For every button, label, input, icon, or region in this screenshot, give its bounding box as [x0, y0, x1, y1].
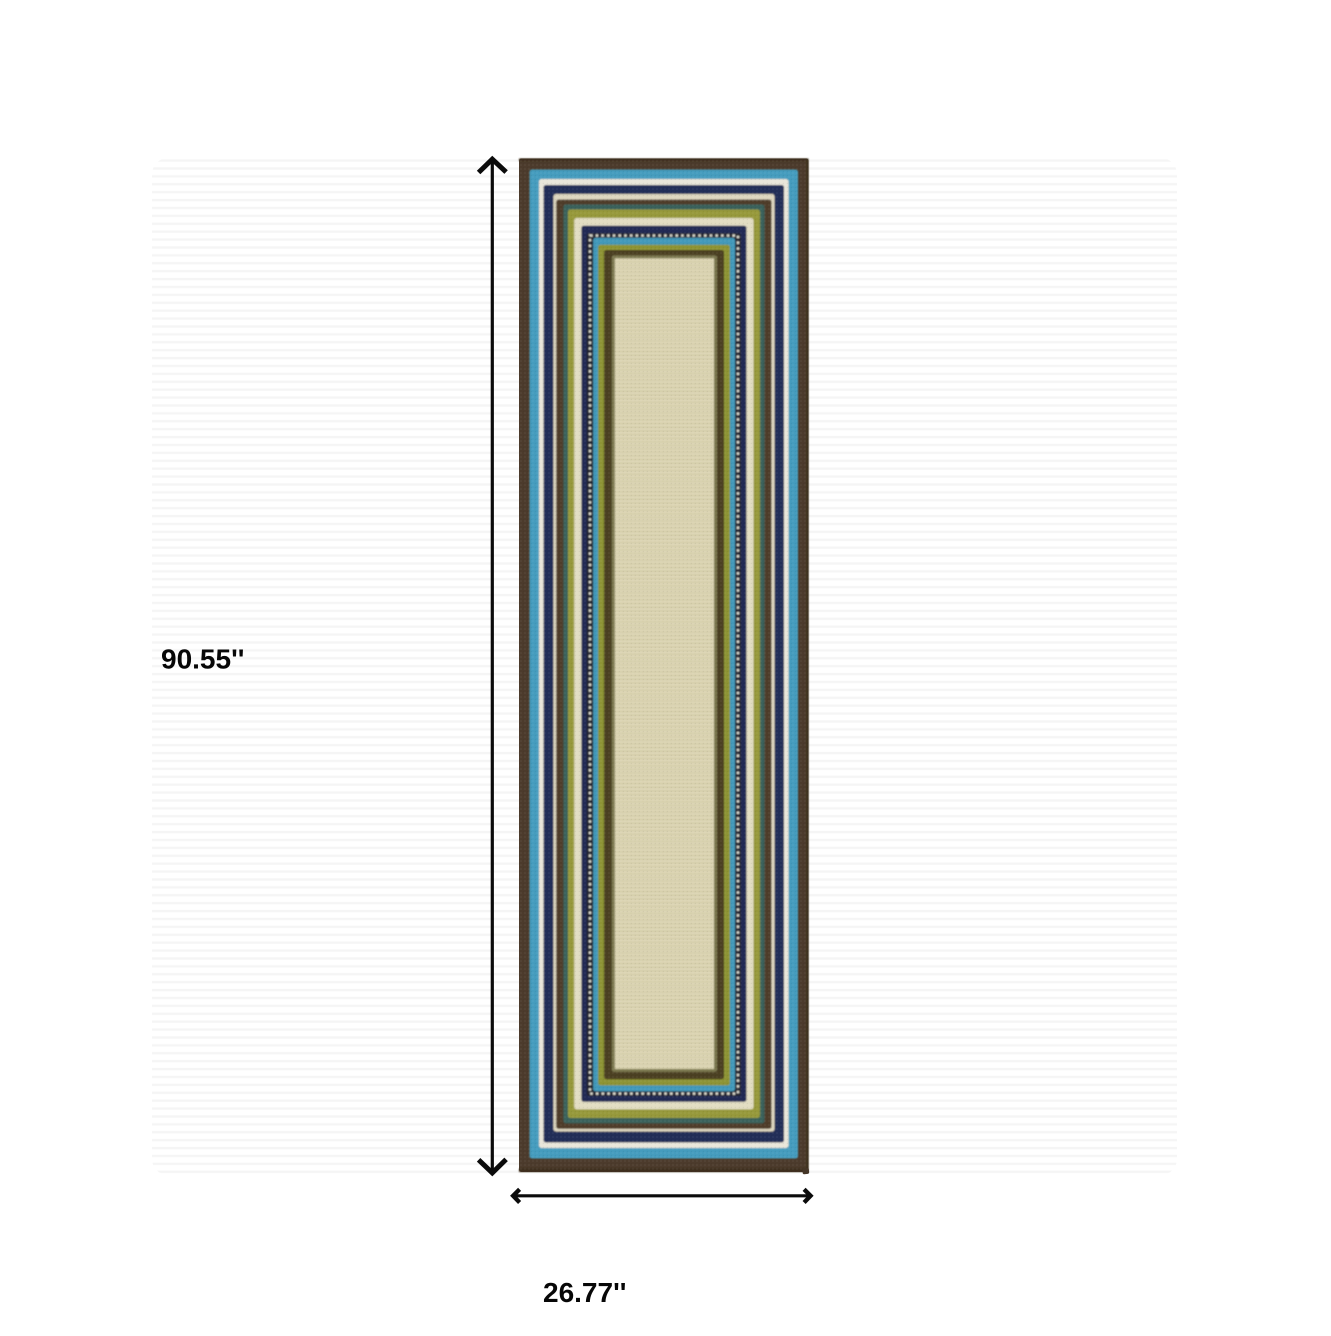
svg-text:26.77'': 26.77'' [543, 1277, 626, 1308]
svg-text:90.55'': 90.55'' [161, 644, 244, 675]
